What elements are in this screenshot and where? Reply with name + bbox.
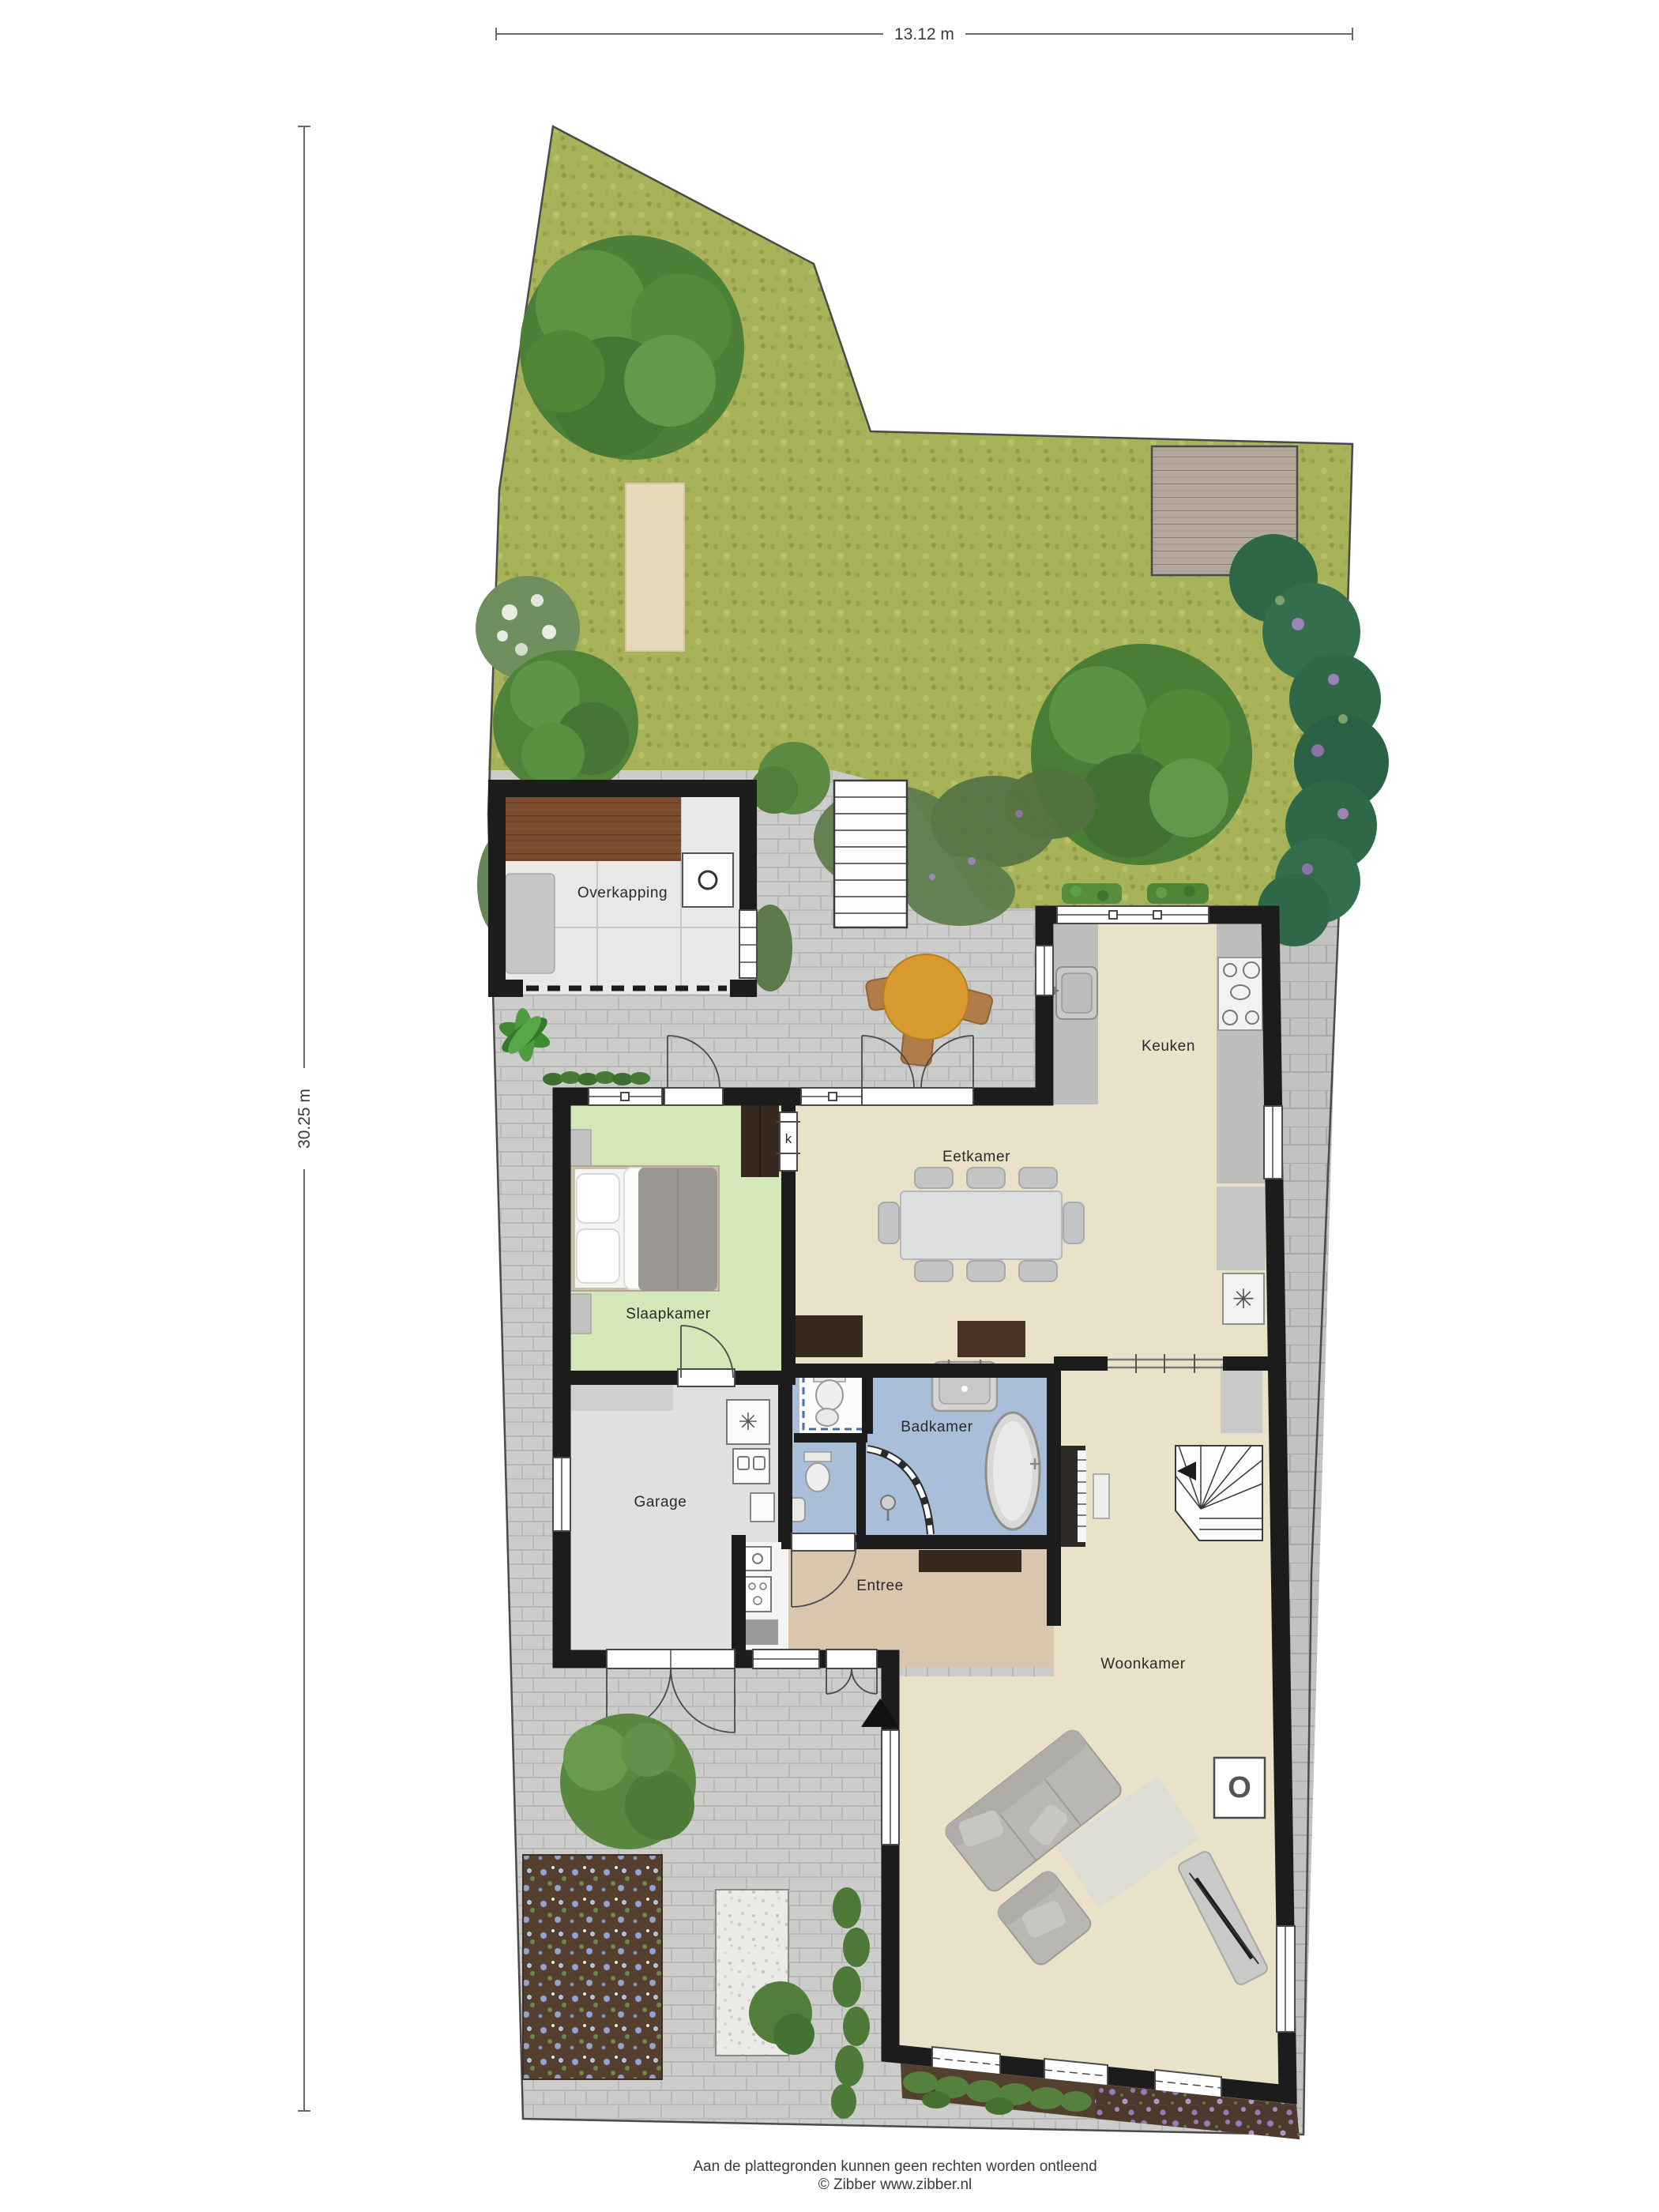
hob-icon [1218,957,1262,1030]
dimension-width-label: 13.12 m [894,25,954,43]
bbq-icon [683,853,733,907]
bed [566,1166,719,1291]
entree-console [919,1550,1021,1572]
window-garage-left [553,1458,570,1531]
bidet-icon [816,1409,838,1426]
garden-steps [834,781,907,927]
boiler-box: ✳ [1223,1273,1264,1324]
overkapping-window [739,910,757,978]
window-woonkamer-right [1277,1926,1295,2032]
room-label-entree: Entree [856,1578,904,1594]
closet-k: k [777,1112,800,1171]
room-label-eetkamer: Eetkamer [942,1149,1010,1165]
dimension-height-label: 30.25 m [295,1089,314,1149]
sideboard-left [786,1315,863,1357]
svg-text:✳: ✳ [738,1409,758,1435]
front-shrub [560,1714,696,1849]
room-label-garage: Garage [634,1494,687,1510]
terrace-table [883,954,969,1040]
dining-table [901,1191,1062,1259]
staircase [1176,1446,1262,1540]
fireplace: O [1214,1758,1265,1818]
washer-icon [733,1449,769,1484]
window-woonkamer-left [882,1730,899,1845]
fireplace-icon: O [1228,1771,1251,1804]
closet-label: k [785,1131,792,1146]
overkapping-deck [498,790,681,861]
tree-large-left [520,235,744,460]
footer-copyright: © Zibber www.zibber.nl [818,2176,972,2193]
room-label-badkamer: Badkamer [901,1419,972,1435]
window-slaapkamer-top [589,1088,662,1105]
floorplan-canvas: Overkapping [0,0,1659,2212]
stair-cabinet [1221,1364,1262,1433]
flower-bed [523,1855,662,2079]
window-entree-bottom [753,1650,819,1668]
window-keuken-left [1036,946,1053,995]
overkapping-lounge [506,874,555,973]
window-keuken-right [1264,1106,1282,1179]
room-label-overkapping: Overkapping [577,885,668,901]
window-keuken-top [1057,906,1209,924]
room-overkapping: Overkapping [488,788,757,997]
garden-path [626,483,684,651]
bathtub-icon [986,1413,1040,1529]
room-label-woonkamer: Woonkamer [1100,1656,1186,1672]
sideboard-right [957,1321,1025,1357]
window-eetkamer-top [801,1088,865,1105]
wc-toilet-icon [804,1452,831,1492]
tree-lower-left [493,650,638,796]
footer-disclaimer: Aan de plattegronden kunnen geen rechten… [693,2158,1097,2175]
boiler-icon: ✳ [1232,1285,1255,1315]
room-label-slaapkamer: Slaapkamer [626,1306,710,1322]
boiler-unit: ✳ [727,1400,769,1444]
room-label-keuken: Keuken [1142,1038,1195,1055]
